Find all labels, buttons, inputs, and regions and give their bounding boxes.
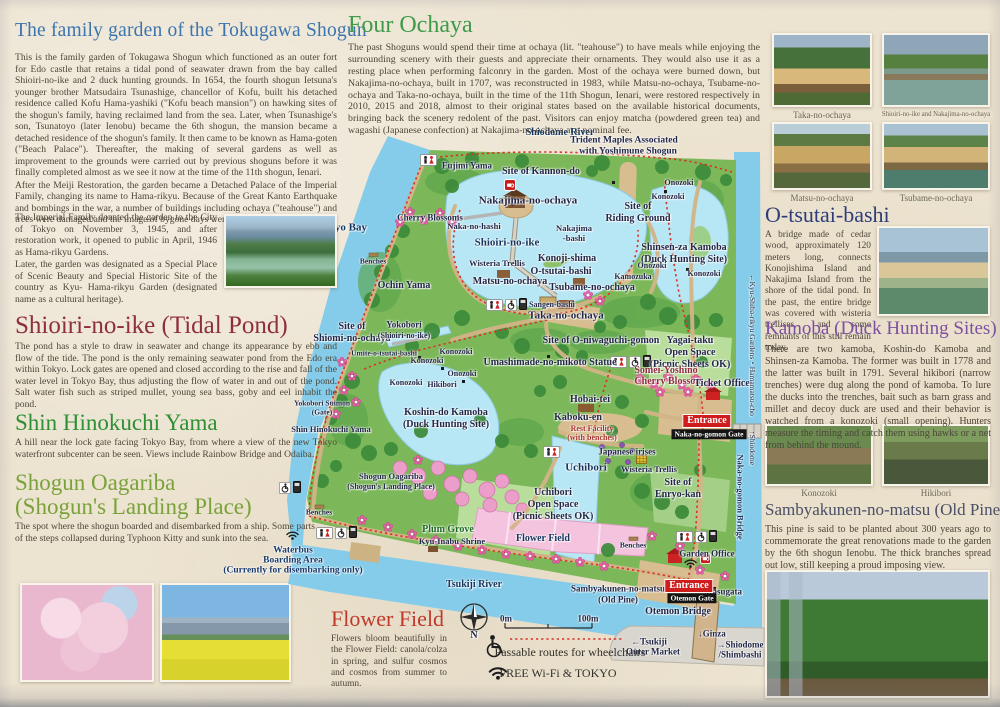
section-heading-otsutai-bashi: O-tsutai-bashi [765, 202, 890, 228]
section-heading-kamoba: Kamoba (Duck Hunting Sites) [765, 318, 997, 340]
paragraph: The pond has a style to draw in seawater… [15, 341, 337, 410]
intro-text: This is the family garden of Tokugawa Sh… [15, 52, 337, 226]
paragraph: This is the family garden of Tokugawa Sh… [15, 52, 337, 179]
section-heading-old-pine: Sambyakunen-no-matsu (Old Pine) [765, 500, 1000, 520]
flower-field-text: Flowers bloom beautifully in the Flower … [331, 634, 447, 690]
shin-text: A hill near the lock gate facing Tokyo B… [15, 437, 337, 460]
kamoba-text: There are two kamoba, Koshin-do Kamoba a… [765, 344, 991, 452]
paragraph: The past Shoguns would spend their time … [348, 42, 760, 137]
brochure-page: { "left": { "title": "The family garden … [0, 0, 1000, 707]
section-heading-four-ochaya: Four Ochaya [348, 12, 473, 39]
wheelchair-icon [488, 635, 503, 656]
paragraph: There are two kamoba, Koshin-do Kamoba a… [765, 344, 991, 452]
section-heading-flower-field: Flower Field [331, 606, 444, 632]
paragraph: The spot where the shogun boarded and di… [15, 521, 315, 544]
tidal-pond-photo [224, 214, 337, 288]
donation-text: The Imperial Family donated the garden t… [15, 212, 337, 305]
paragraph: This pine is said to be planted about 30… [765, 524, 991, 572]
shioiri-text: The pond has a style to draw in seawater… [15, 341, 337, 410]
wifi-icon [490, 668, 507, 679]
old-pine-text: This pine is said to be planted about 30… [765, 524, 991, 572]
shogun-text: The spot where the shogun boarded and di… [15, 521, 315, 544]
paragraph: Flowers bloom beautifully in the Flower … [331, 634, 447, 690]
paragraph: A hill near the lock gate facing Tokyo B… [15, 437, 337, 460]
four-ochaya-text: The past Shoguns would spend their time … [348, 42, 760, 137]
